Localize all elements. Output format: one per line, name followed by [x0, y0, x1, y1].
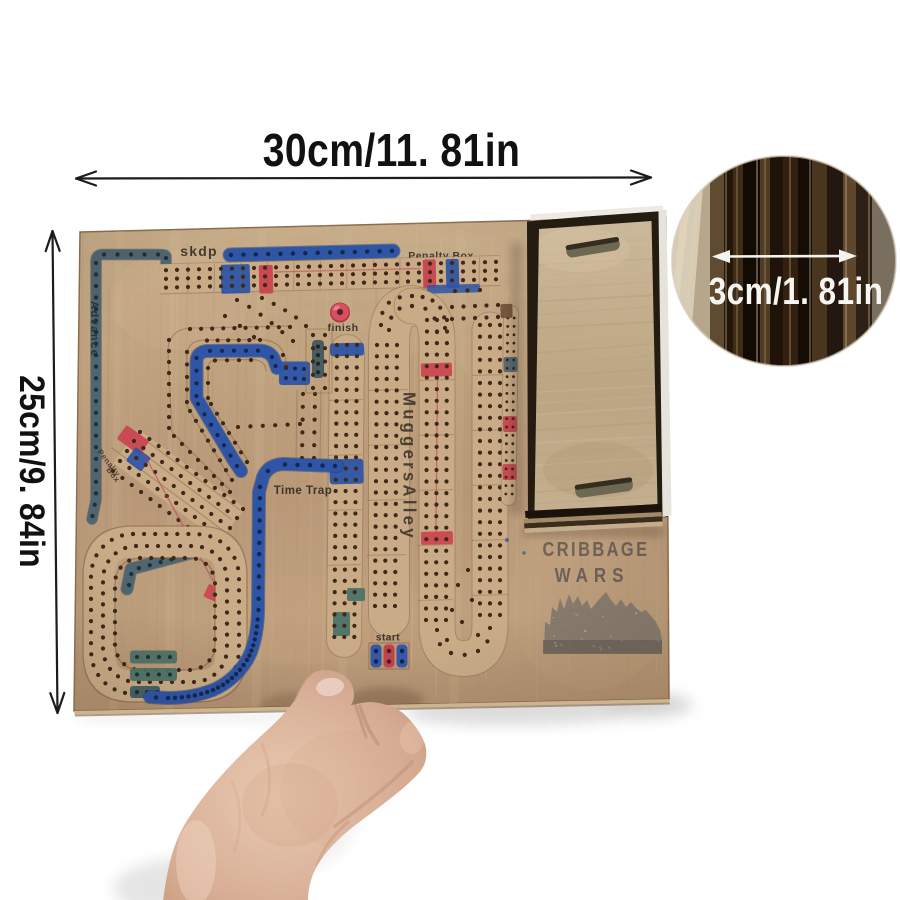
svg-text:25cm/9. 84in: 25cm/9. 84in	[12, 375, 51, 568]
svg-text:3cm/1. 81in: 3cm/1. 81in	[709, 270, 884, 312]
svg-text:30cm/11. 81in: 30cm/11. 81in	[263, 125, 521, 177]
